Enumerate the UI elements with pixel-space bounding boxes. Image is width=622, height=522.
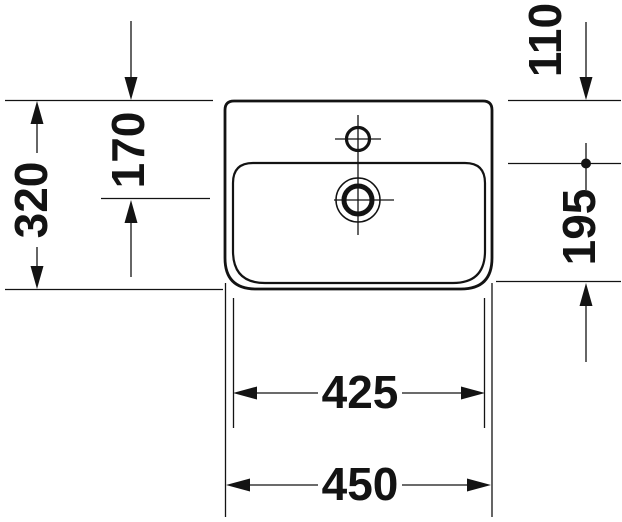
dimension-bottom-outer: 450	[226, 458, 491, 510]
arrowhead-down	[580, 77, 593, 100]
dimension-right-upper: 110	[519, 3, 593, 100]
dimension-label-110: 110	[519, 3, 571, 77]
arrowhead-up	[31, 101, 44, 124]
dimension-label-425: 425	[322, 366, 399, 418]
dimension-left-inner: 170	[102, 21, 154, 277]
dimension-left-outer: 320	[5, 101, 57, 289]
arrowhead-up	[125, 200, 138, 223]
washbasin-technical-drawing: 320 170 110 195	[0, 0, 622, 522]
dimension-label-450: 450	[322, 458, 399, 510]
dimension-label-195: 195	[553, 189, 605, 266]
arrowhead-up	[580, 283, 593, 306]
basin	[225, 101, 492, 289]
dimension-origin-dot	[581, 159, 591, 169]
dimension-right-lower: 195	[553, 143, 605, 362]
dimension-label-320: 320	[5, 162, 57, 239]
technical-drawing-canvas: 320 170 110 195	[0, 0, 622, 522]
arrowhead-right	[467, 479, 491, 492]
arrowhead-left	[233, 387, 257, 400]
arrowhead-left	[226, 479, 250, 492]
arrowhead-down	[31, 266, 44, 289]
arrowhead-right	[461, 387, 485, 400]
dimension-bottom-inner: 425	[233, 366, 485, 418]
arrowhead-down	[125, 77, 138, 100]
dimension-label-170: 170	[102, 112, 154, 189]
drain	[334, 178, 394, 222]
basin-bowl-outline	[233, 163, 485, 283]
